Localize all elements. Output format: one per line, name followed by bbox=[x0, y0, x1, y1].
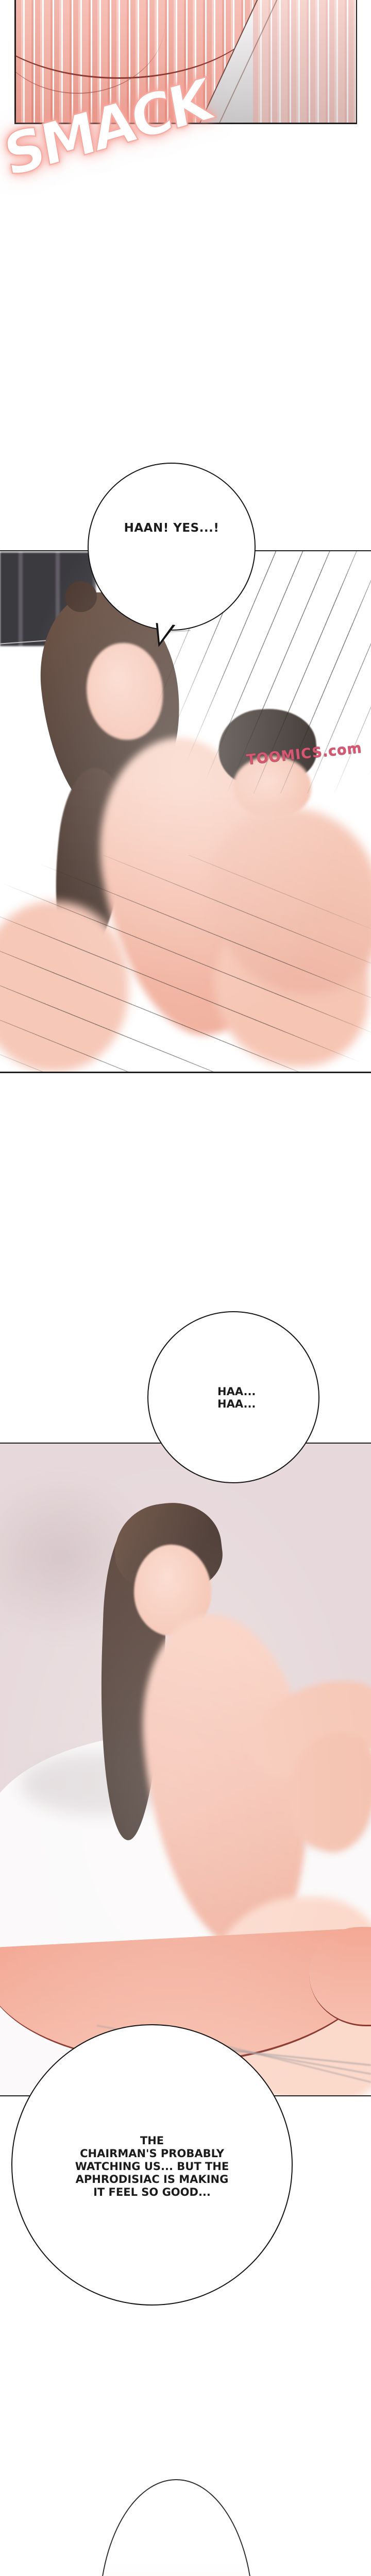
speech-bubble-1-text: HAAN! YES...! bbox=[89, 521, 255, 535]
speech-bubble-1: HAAN! YES...! bbox=[88, 463, 256, 631]
white-wash-overlay-2 bbox=[0, 1444, 371, 2095]
panel-closeup-scene bbox=[0, 1443, 371, 2096]
speech-bubble-3-text: THE CHAIRMAN'S PROBABLY WATCHING US... B… bbox=[12, 2134, 292, 2199]
curtain-swag-line-2 bbox=[14, 0, 165, 94]
speech-bubble-1-tail bbox=[156, 621, 174, 643]
speech-bubble-3: THE CHAIRMAN'S PROBABLY WATCHING US... B… bbox=[11, 2024, 293, 2306]
comic-page: SMACK TOOMICS.com HAAN! YES...! HAA... H… bbox=[0, 0, 371, 2576]
speech-bubble-2-text: HAA... HAA... bbox=[217, 1385, 256, 1410]
knee-outline-shape bbox=[99, 2479, 254, 2576]
speech-bubble-2: HAA... HAA... bbox=[147, 1311, 319, 1483]
